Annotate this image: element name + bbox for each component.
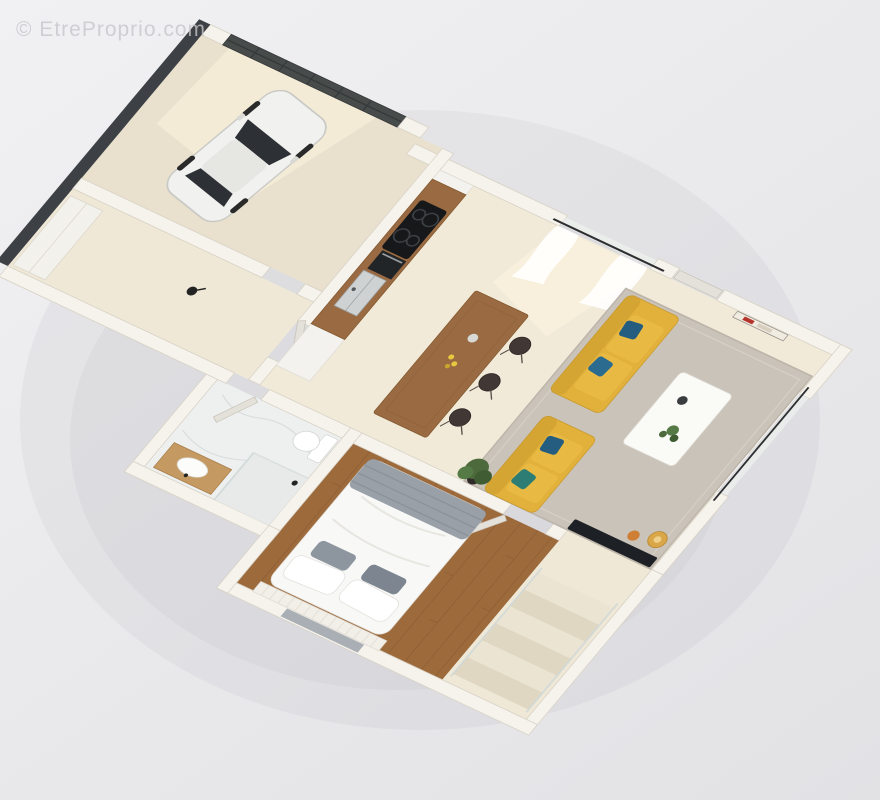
watermark: © EtreProprio.com bbox=[16, 18, 206, 42]
render-stage: © EtreProprio.com bbox=[0, 0, 880, 800]
floorplan-svg bbox=[0, 0, 880, 800]
